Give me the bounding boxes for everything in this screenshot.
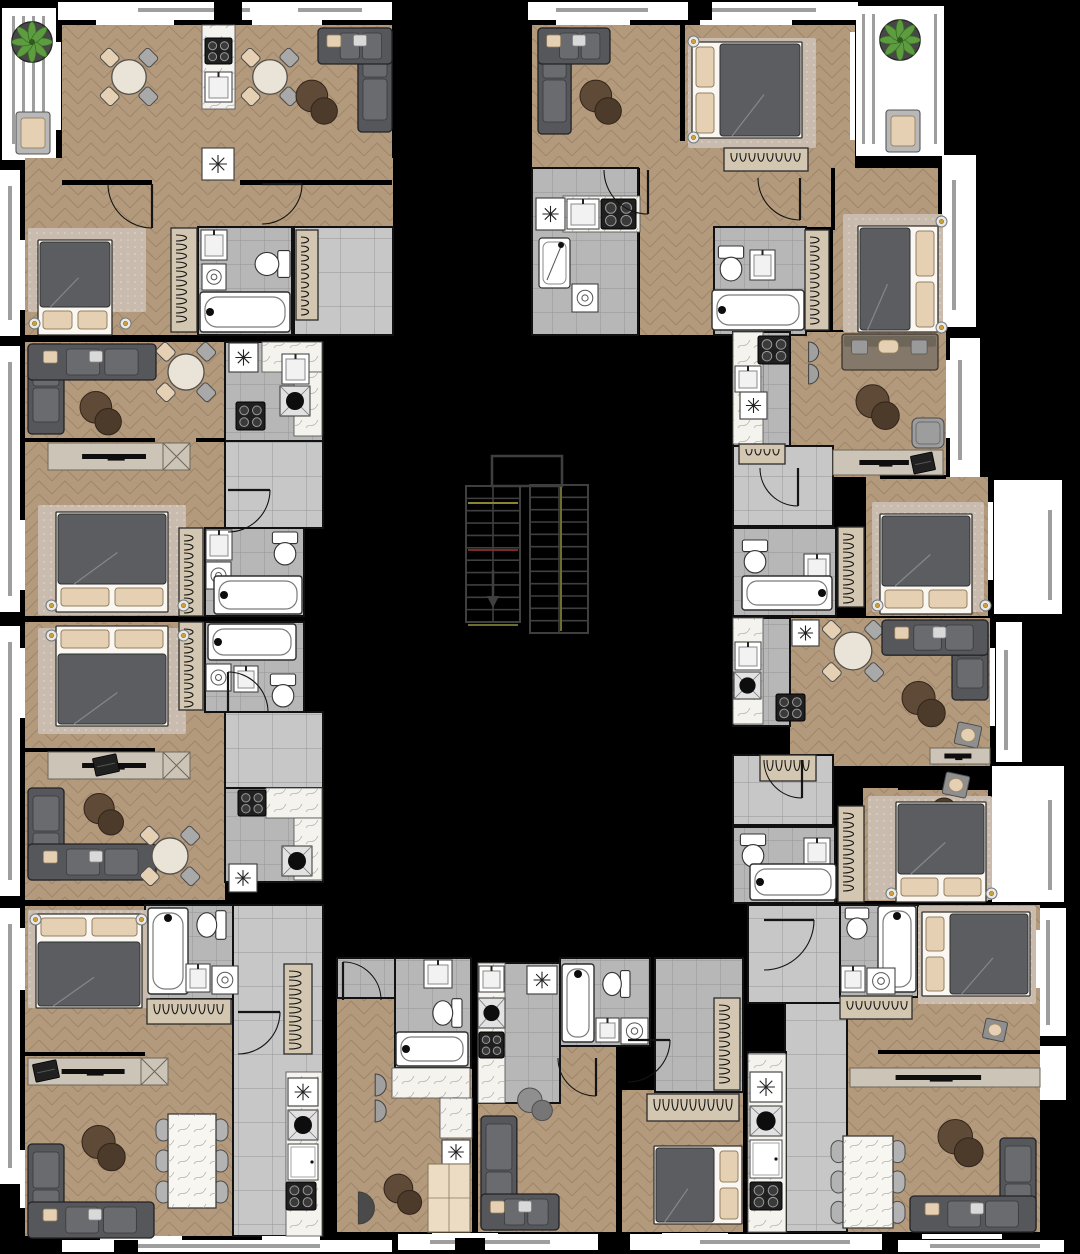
- stove: [776, 694, 805, 721]
- kitchen-sink: [478, 998, 505, 1028]
- bed: [36, 914, 142, 1008]
- kitchen-sink: [288, 1110, 318, 1140]
- wardrobe: [296, 230, 318, 320]
- interior-wall: [25, 438, 155, 442]
- wardrobe: [147, 999, 231, 1024]
- railing: [8, 186, 12, 320]
- fridge: [792, 620, 819, 646]
- bedside-lamp: [178, 630, 189, 641]
- sink: [424, 960, 452, 988]
- window: [96, 20, 174, 25]
- stove: [286, 1182, 316, 1210]
- fridge: [229, 864, 257, 892]
- fridge: [740, 392, 767, 419]
- window: [946, 360, 951, 438]
- railing: [298, 8, 362, 12]
- interior-wall: [196, 438, 225, 442]
- window: [20, 520, 25, 590]
- kitchen-cabinet: [428, 1164, 470, 1232]
- railing: [8, 924, 12, 1168]
- toilet: [272, 532, 297, 565]
- unit-f-entry: [337, 958, 395, 998]
- railing: [1046, 920, 1050, 1025]
- railing: [698, 8, 816, 12]
- bedside-lamp: [872, 600, 883, 611]
- terrace: [942, 155, 976, 327]
- railing: [952, 180, 956, 310]
- sink: [596, 1018, 619, 1042]
- wardrobe: [284, 964, 312, 1054]
- wardrobe: [838, 806, 864, 902]
- stove: [236, 402, 265, 430]
- toilet: [603, 971, 630, 998]
- bedside-lamp: [936, 322, 947, 333]
- wardrobe: [838, 527, 864, 607]
- railing: [1048, 510, 1052, 600]
- bed: [56, 626, 168, 726]
- window: [922, 1234, 1002, 1239]
- wardrobe: [840, 996, 912, 1019]
- toilet: [255, 251, 290, 278]
- terrace: [950, 338, 980, 478]
- window: [990, 648, 995, 726]
- dining-table: [156, 1114, 228, 1208]
- bathtub: [208, 624, 296, 660]
- bedside-lamp: [46, 630, 57, 641]
- terrace: [992, 766, 1064, 902]
- window: [988, 502, 993, 580]
- wardrobe: [714, 998, 740, 1090]
- stool: [982, 1018, 1008, 1042]
- sink: [205, 72, 232, 102]
- window: [700, 20, 792, 25]
- interior-wall: [25, 1052, 145, 1056]
- bathtub: [712, 290, 804, 330]
- floor-plan-canvas: [0, 0, 1080, 1254]
- toilet: [718, 246, 743, 281]
- residential-floor-plan: [0, 0, 1080, 1254]
- stair-flight: [466, 486, 520, 622]
- cabinet: [288, 1144, 318, 1180]
- staircase: [466, 456, 588, 633]
- window: [56, 42, 61, 130]
- bathtub: [742, 576, 832, 610]
- laundry-sink: [539, 238, 570, 288]
- wardrobe: [739, 444, 785, 464]
- kitchen-sink: [750, 1106, 782, 1136]
- fridge: [442, 1140, 470, 1164]
- railing: [958, 360, 962, 460]
- sink: [750, 250, 775, 280]
- bed: [880, 514, 972, 614]
- interior-wall: [62, 180, 152, 185]
- cabinet: [750, 1140, 782, 1178]
- toilet: [742, 540, 767, 573]
- stool: [954, 722, 982, 749]
- terrace: [1040, 908, 1066, 1036]
- unit-d-corridor: [225, 712, 323, 788]
- kitchen-sink: [280, 386, 310, 416]
- tv-console: [48, 752, 190, 779]
- unit-b-hall: [640, 168, 718, 335]
- bed: [922, 912, 1030, 996]
- fridge: [750, 1072, 782, 1102]
- stove: [750, 1182, 782, 1210]
- window: [252, 20, 322, 25]
- interior-wall: [25, 748, 155, 752]
- bedside-lamp: [30, 914, 41, 925]
- bathtub: [396, 1032, 468, 1066]
- stair-landing: [492, 456, 562, 486]
- wall-pier: [214, 0, 242, 26]
- railing: [556, 8, 648, 12]
- stair-accent-line: [468, 549, 518, 551]
- stair-flight: [530, 485, 588, 633]
- window: [1036, 930, 1041, 988]
- stove: [479, 1032, 504, 1058]
- stair-accent-line: [560, 487, 562, 631]
- window: [850, 32, 855, 140]
- washing-machine: [867, 968, 895, 994]
- railing: [120, 1244, 320, 1248]
- kitchen-sink: [282, 846, 312, 876]
- kitchen-counter: [440, 1098, 472, 1138]
- bathtub: [200, 292, 290, 332]
- unit-h-corridor: [785, 1003, 847, 1232]
- bed: [692, 42, 802, 138]
- tv-console: [930, 748, 990, 764]
- sink: [234, 666, 258, 692]
- fridge: [527, 966, 557, 994]
- balcony-chair: [16, 112, 50, 154]
- stove: [601, 199, 636, 229]
- sink: [567, 199, 599, 229]
- stove: [205, 38, 232, 64]
- window: [262, 1236, 320, 1240]
- bedside-lamp: [886, 888, 897, 899]
- bedside-lamp: [178, 600, 189, 611]
- bathtub: [562, 964, 594, 1042]
- stair-accent-line: [468, 502, 518, 504]
- sink: [186, 964, 210, 992]
- wardrobe: [724, 148, 808, 171]
- railing: [1048, 800, 1052, 890]
- railing: [8, 642, 12, 880]
- fridge: [536, 198, 565, 230]
- sink: [206, 530, 232, 560]
- stove: [758, 336, 790, 364]
- tv-console: [850, 1068, 1040, 1087]
- tv-console: [48, 443, 190, 470]
- bathtub: [148, 908, 188, 994]
- bedside-lamp: [46, 600, 57, 611]
- bedside-lamp: [986, 888, 997, 899]
- bed: [858, 226, 938, 332]
- window: [20, 1150, 25, 1208]
- window: [556, 20, 630, 25]
- armchair: [912, 418, 944, 448]
- sink: [201, 230, 227, 260]
- interior-wall: [831, 168, 835, 230]
- wall-pier: [0, 336, 20, 346]
- railing: [700, 1240, 850, 1244]
- wall-pier: [0, 616, 20, 626]
- stove: [238, 790, 266, 816]
- kitchen-sink: [734, 672, 761, 699]
- sink: [479, 966, 504, 992]
- interior-wall: [680, 25, 685, 141]
- sink: [735, 642, 761, 670]
- bedside-lamp: [980, 600, 991, 611]
- bedside-lamp: [688, 36, 699, 47]
- interior-wall: [878, 1050, 1040, 1054]
- stool: [942, 772, 970, 799]
- wall-pier: [114, 1240, 138, 1254]
- railing: [872, 14, 875, 144]
- window: [20, 240, 25, 310]
- kitchen-counter: [733, 618, 763, 724]
- wardrobe: [805, 230, 829, 330]
- stair-accent-line: [468, 624, 518, 626]
- fridge: [202, 148, 234, 180]
- railing: [930, 1244, 1040, 1248]
- fridge: [288, 1078, 318, 1106]
- sink: [841, 966, 865, 992]
- toilet: [740, 834, 765, 867]
- bedside-lamp: [136, 914, 147, 925]
- toilet: [197, 911, 226, 940]
- wardrobe: [647, 1094, 739, 1121]
- unit-b-hall2: [714, 168, 833, 227]
- balcony-chair: [886, 110, 920, 152]
- kitchen-counter: [266, 788, 322, 818]
- washing-machine: [572, 284, 598, 312]
- bedside-lamp: [688, 132, 699, 143]
- bedside-lamp: [120, 318, 131, 329]
- toilet: [270, 674, 295, 707]
- bedside-lamp: [936, 216, 947, 227]
- window: [662, 1233, 728, 1238]
- window: [20, 928, 25, 990]
- bathtub: [214, 576, 302, 614]
- sink: [804, 838, 830, 866]
- sink: [282, 354, 309, 384]
- balcony-plant: [880, 20, 920, 60]
- railing: [1004, 650, 1008, 750]
- window: [20, 648, 25, 718]
- window: [432, 1233, 498, 1238]
- bathtub: [750, 864, 836, 900]
- washing-machine: [202, 264, 226, 290]
- wall-pier: [1040, 1038, 1066, 1046]
- kitchen-counter: [392, 1068, 470, 1098]
- bed: [654, 1146, 742, 1224]
- wall-pier: [0, 900, 20, 908]
- railing: [862, 14, 865, 144]
- balcony-plant: [12, 22, 52, 62]
- bed: [56, 512, 168, 612]
- railing: [430, 1240, 550, 1244]
- wall-pier: [882, 1232, 898, 1254]
- washing-machine: [212, 966, 238, 994]
- sink: [735, 366, 761, 392]
- railing: [934, 14, 937, 144]
- wardrobe: [171, 228, 197, 332]
- interior-wall: [880, 475, 946, 479]
- bed: [38, 240, 112, 335]
- terrace: [1040, 1046, 1066, 1100]
- toilet: [433, 999, 462, 1028]
- toilet: [845, 908, 869, 939]
- bedside-lamp: [29, 318, 40, 329]
- dining-table: [831, 1136, 905, 1228]
- sofa: [842, 334, 938, 370]
- unit-c-corridor: [225, 441, 323, 528]
- railing: [8, 362, 12, 596]
- fridge: [229, 343, 258, 372]
- bed: [896, 802, 986, 902]
- terrace: [996, 622, 1022, 762]
